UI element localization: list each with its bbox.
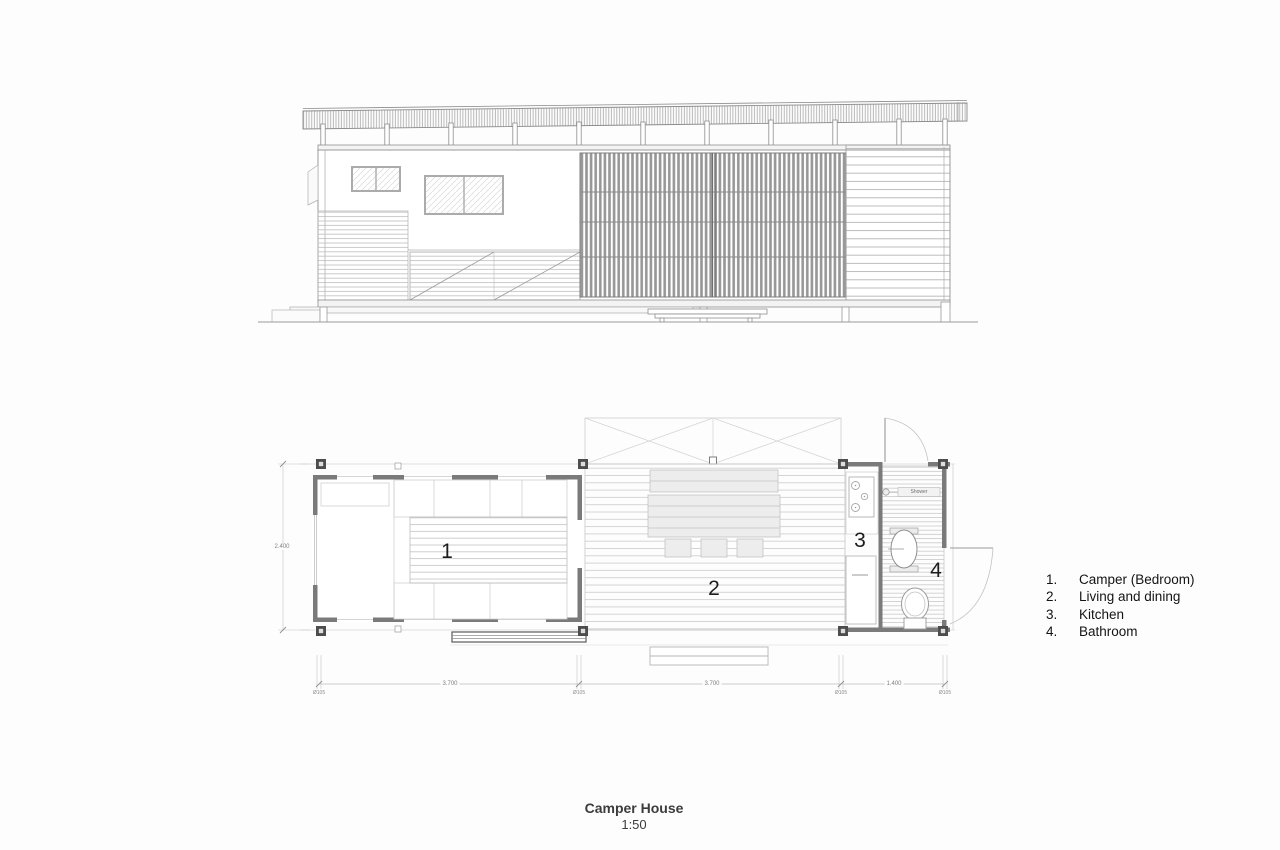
title-block: Camper House 1:50 <box>585 800 684 832</box>
elevation-roof <box>303 101 967 130</box>
plan-entry-door <box>885 418 928 462</box>
elevation-drawing <box>258 101 978 323</box>
drawing-sheet: 1 2 3 4 Shower 3.700 3.700 1.400 2.400 Ø… <box>0 0 1280 850</box>
legend-item-living-dining: 2. Living and dining <box>1046 588 1195 605</box>
floor-plan-drawing <box>278 418 993 689</box>
room-label-bathroom: 4 <box>930 559 942 583</box>
legend-number: 3. <box>1046 606 1079 623</box>
plan-entry-step <box>452 632 586 642</box>
elevation-siding-left <box>318 211 408 302</box>
drawing-title: Camper House <box>585 800 684 816</box>
shower-label: Shower <box>911 489 928 495</box>
architectural-linework <box>0 0 1280 850</box>
elevation-window-small <box>352 167 400 191</box>
legend-label: Camper (Bedroom) <box>1079 571 1195 588</box>
legend-label: Kitchen <box>1079 606 1195 623</box>
plan-toilet <box>902 588 929 629</box>
legend-label: Living and dining <box>1079 588 1195 605</box>
dim-post-diameter-3: Ø105 <box>834 690 848 696</box>
plan-roof-bracing <box>585 418 841 464</box>
elevation-window-large <box>425 176 503 214</box>
dim-post-diameter-2: Ø105 <box>572 690 586 696</box>
elevation-siding-right <box>846 145 950 302</box>
legend-item-kitchen: 3. Kitchen <box>1046 606 1195 623</box>
dim-post-diameter-1: Ø105 <box>312 690 326 696</box>
legend: 1. Camper (Bedroom) 2. Living and dining… <box>1046 571 1195 641</box>
plan-outdoor-bench <box>650 647 768 665</box>
dim-bathroom-width: 1.400 <box>884 681 903 687</box>
plan-bathroom-door <box>950 548 993 624</box>
dim-post-diameter-4: Ø105 <box>938 690 952 696</box>
legend-label: Bathroom <box>1079 623 1195 640</box>
dim-plan-depth: 2.400 <box>272 544 291 550</box>
legend-number: 4. <box>1046 623 1079 640</box>
elevation-foundation <box>272 300 950 322</box>
dim-camper-width: 3.700 <box>440 681 459 687</box>
legend-item-bathroom: 4. Bathroom <box>1046 623 1195 640</box>
elevation-slat-screen <box>580 153 846 297</box>
room-label-kitchen: 3 <box>854 529 866 553</box>
room-label-living-dining: 2 <box>708 577 720 601</box>
legend-number: 1. <box>1046 571 1079 588</box>
elevation-bench <box>648 309 767 322</box>
drawing-scale: 1:50 <box>585 817 684 832</box>
legend-number: 2. <box>1046 588 1079 605</box>
dim-living-width: 3.700 <box>702 681 721 687</box>
plan-dining-set <box>648 470 780 557</box>
room-label-camper: 1 <box>441 540 453 564</box>
legend-item-camper: 1. Camper (Bedroom) <box>1046 571 1195 588</box>
plan-bed <box>410 517 567 583</box>
